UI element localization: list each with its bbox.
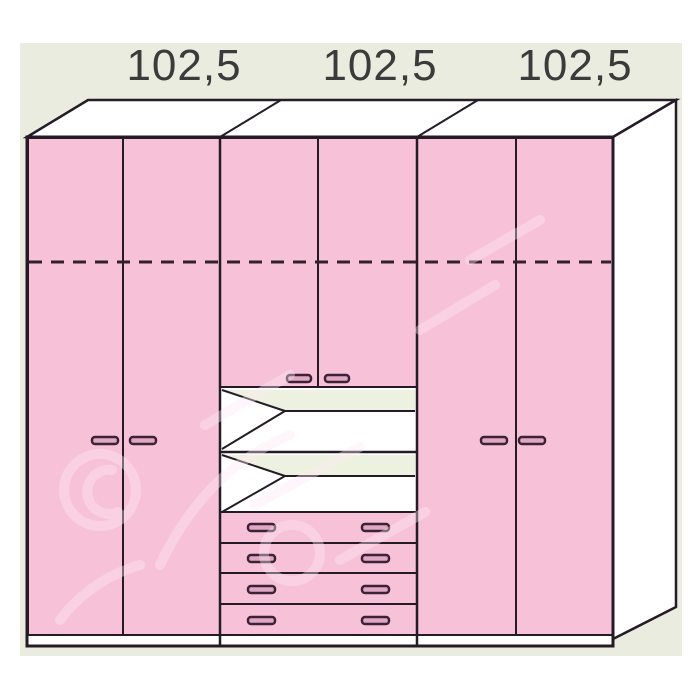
open-shelf-niche bbox=[220, 387, 417, 512]
door-handle bbox=[481, 437, 507, 444]
plinth-base bbox=[27, 635, 613, 646]
left-section-door-left bbox=[28, 138, 123, 635]
catalog-image: 102,5 102,5 102,5 bbox=[0, 0, 700, 700]
left-section-door-right bbox=[123, 138, 220, 635]
right-section-door-left bbox=[417, 138, 516, 635]
drawer-handle bbox=[362, 586, 389, 593]
wardrobe-right-side-panel bbox=[613, 100, 676, 639]
right-section-door-right bbox=[516, 138, 613, 635]
drawer-handle bbox=[248, 586, 275, 593]
drawer-handle bbox=[362, 555, 389, 562]
door-handle bbox=[519, 437, 545, 444]
drawer-handle bbox=[248, 617, 275, 624]
door-handle bbox=[92, 437, 118, 444]
door-handle bbox=[325, 375, 349, 382]
drawer-handle bbox=[362, 617, 389, 624]
door-handle bbox=[130, 437, 156, 444]
wardrobe-drawing bbox=[0, 0, 700, 700]
wardrobe-top-face bbox=[27, 100, 676, 137]
